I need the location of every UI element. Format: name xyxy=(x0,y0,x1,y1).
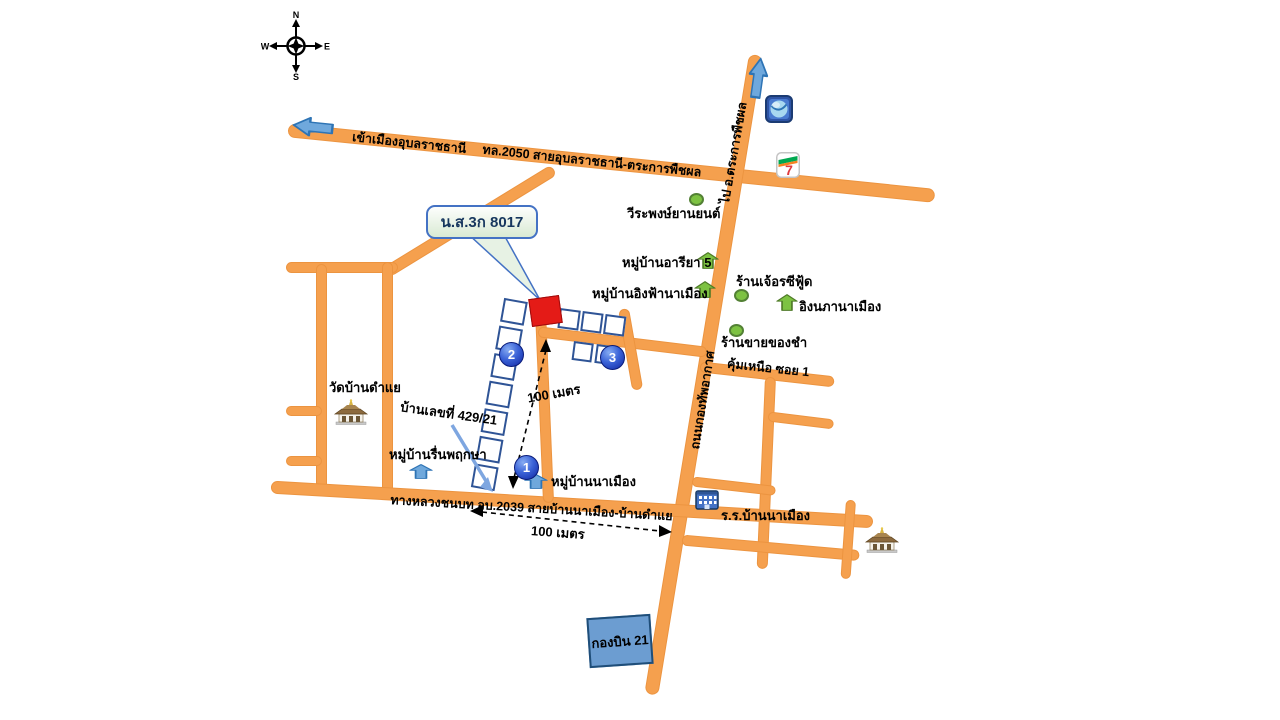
label-house-number: บ้านเลขที่ 429/21 xyxy=(399,396,499,430)
label-car-shop: วีระพงษ์ยานยนต์ xyxy=(627,203,721,224)
label-school: ร.ร.บ้านนาเมือง xyxy=(721,505,810,526)
marker-1: 1 xyxy=(514,455,539,480)
west-arrow-icon xyxy=(291,115,335,139)
label-soi-kum-nuea: คุ้มเหนือ ซอย 1 xyxy=(726,354,810,383)
temple-icon-2 xyxy=(864,527,900,554)
ruenpruksa-arrow-icon xyxy=(409,464,433,479)
house-plot xyxy=(485,381,513,409)
label-grocery-shop: ร้านขายของชำ xyxy=(721,332,807,353)
road-right-short-vertical xyxy=(841,500,856,580)
temple-icon xyxy=(333,399,369,426)
compass-n: N xyxy=(293,11,300,20)
marker-3: 3 xyxy=(600,345,625,370)
house-plot xyxy=(603,314,626,337)
wing21-label: กองบิน 21 xyxy=(591,629,650,654)
road-right-horizontal-1 xyxy=(767,411,834,429)
label-airforce-road: ถนนกองทัพอากาศ xyxy=(685,349,720,450)
road-left-stub-1 xyxy=(286,406,322,416)
house-plot xyxy=(572,341,594,362)
seven-eleven-7: 7 xyxy=(785,162,793,178)
label-into-city: เข้าเมืองอุบลราชธานี xyxy=(351,127,467,159)
house-plot xyxy=(500,298,528,326)
label-measure-horizontal: 100 เมตร xyxy=(530,520,585,545)
label-ruenpruksa-village: หมู่บ้านรื่นพฤกษา xyxy=(389,444,487,465)
label-areeya-village: หมู่บ้านอารียา 5 xyxy=(622,252,711,273)
measure-overlay xyxy=(0,0,1280,720)
measure-arrowhead-down xyxy=(508,476,519,489)
compass-s: S xyxy=(293,72,299,81)
compass-icon: N E S W xyxy=(261,11,331,81)
marker-2: 2 xyxy=(499,342,524,367)
label-ingnapha-village: อิงนภานาเมือง xyxy=(799,296,881,317)
seven-eleven-icon: 7 xyxy=(776,152,800,178)
house-plot xyxy=(580,311,603,334)
label-ingfah-village: หมู่บ้านอิงฟ้านาเมือง xyxy=(592,283,708,304)
north-arrow-icon xyxy=(745,56,771,100)
label-measure-vertical: 100 เมตร xyxy=(526,378,583,408)
school-icon xyxy=(695,489,719,510)
parcel-callout: น.ส.3ก 8017 xyxy=(426,205,538,239)
road-left-stub-2 xyxy=(286,456,322,466)
compass-e: E xyxy=(324,42,330,52)
label-hwy2050: ทล.2050 สายอุบลราชธานี-ตระการพืชผล xyxy=(482,140,703,183)
wing21-area: กองบิน 21 xyxy=(586,614,653,668)
compass-w: W xyxy=(261,42,270,52)
parcel-ns3k-8017 xyxy=(528,295,563,327)
label-namueang-village: หมู่บ้านนาเมือง xyxy=(551,471,636,492)
callout-tail xyxy=(467,233,540,300)
label-temple: วัดบ้านดำแย xyxy=(329,377,401,398)
map-canvas: น.ส.3ก 8017 1 2 3 เข้าเมืองอุบลราชธานี ท… xyxy=(0,0,1280,720)
label-seafood-shop: ร้านเจ้อรซีฟู้ด xyxy=(736,271,813,292)
road-right-vertical-long xyxy=(757,377,776,569)
globe-shop-icon xyxy=(765,95,793,123)
house-plot-429-21 xyxy=(471,463,499,491)
parcel-callout-label: น.ส.3ก 8017 xyxy=(441,210,524,234)
ingnapha-arrow-icon xyxy=(776,294,798,311)
road-right-horizontal-3 xyxy=(681,535,859,561)
